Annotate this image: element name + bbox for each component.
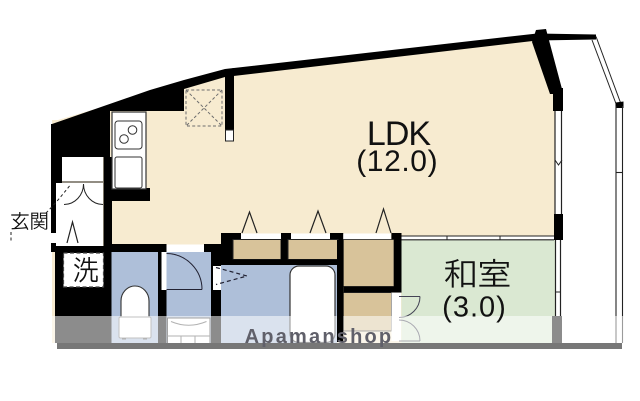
svg-text:(12.0): (12.0) [356,145,438,178]
svg-text:Apamanshop: Apamanshop [245,326,394,348]
svg-text:(3.0): (3.0) [442,291,507,323]
